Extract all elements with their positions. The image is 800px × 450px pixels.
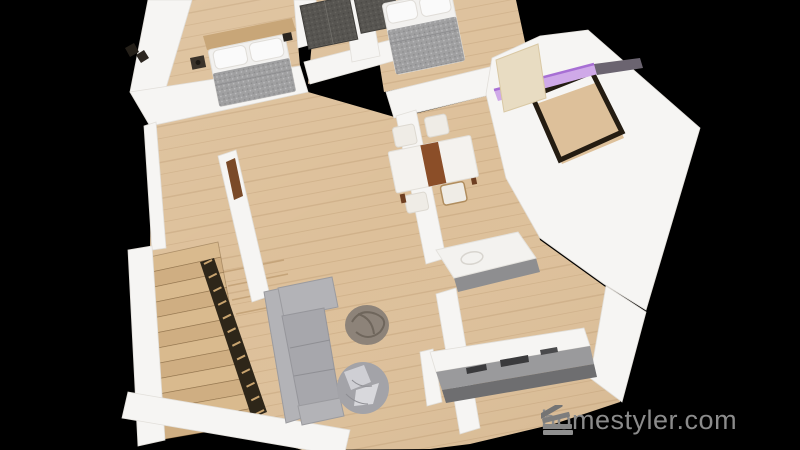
chair xyxy=(392,124,418,148)
pouf xyxy=(337,362,389,414)
chair xyxy=(404,192,429,214)
chair-wood-frame xyxy=(440,181,468,205)
bedroom-2 xyxy=(382,0,465,75)
floorplan-3d-view: homestyler.com xyxy=(0,0,800,450)
chair xyxy=(424,114,450,138)
homestyler-logo-icon xyxy=(541,405,577,437)
floorplan-canvas xyxy=(0,0,800,450)
bed-2 xyxy=(382,0,465,75)
round-rug xyxy=(345,305,389,345)
homestyler-watermark: homestyler.com xyxy=(541,405,737,436)
